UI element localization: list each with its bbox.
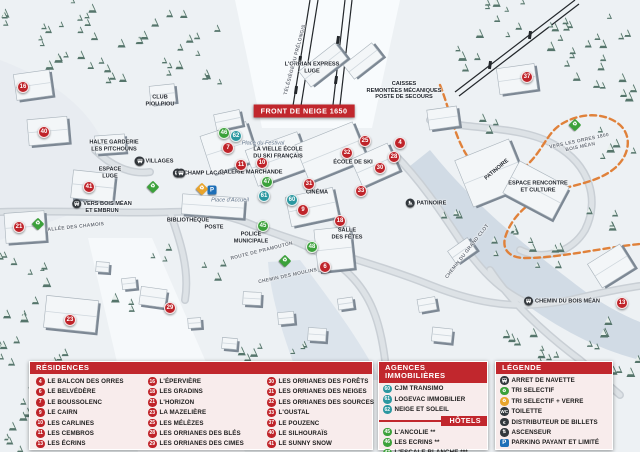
item-label: LE BELVÉDÈRE: [48, 388, 96, 395]
map-marker-residence-30: 30: [374, 162, 386, 174]
recycle-green-icon: ♻: [32, 218, 45, 231]
bus-icon: [500, 376, 509, 385]
item-label: NEIGE ET SOLEIL: [395, 406, 449, 413]
item-number-badge: 47: [383, 449, 392, 452]
map-label-text: BIBLIOTHÈQUE: [167, 218, 209, 224]
map-label: CLUBPIOU PIOU: [146, 94, 175, 107]
map-marker-hotel-47: 47: [261, 176, 273, 188]
item-number-badge: 28: [148, 429, 157, 438]
item-label: LES ORRIANES DES CIMES: [160, 440, 244, 447]
map-label: TÉLÉSIÈGE DU PRÉLONGIS: [284, 24, 308, 96]
map-label-text: ÉCOLE DE SKI: [333, 160, 372, 166]
agences-header: AGENCES IMMOBILIÈRES: [379, 362, 487, 383]
map-marker-residence-18: 18: [334, 215, 346, 227]
map-marker-residence-16: 16: [17, 81, 29, 93]
map-label: PATINOIRE: [483, 158, 510, 182]
residence-item: 11LES CEMBROS: [32, 428, 144, 438]
item-label: LE SUNNY SNOW: [279, 440, 332, 447]
item-number-badge: 46: [383, 438, 392, 447]
item-label: LES ORRIANES DES NEIGES: [279, 388, 367, 395]
map-label: CHEMIN DES MOULINS: [258, 268, 318, 286]
map-label-text: SALLEDES FÊTES: [331, 227, 362, 240]
map-label-text: PATINOIRE: [483, 158, 510, 182]
residence-item: 31LES ORRIANES DES NEIGES: [263, 387, 373, 397]
map-label-text: ALLÉE DES CHAMOIS: [47, 222, 104, 233]
recycle-green-icon: ♻: [500, 387, 509, 396]
legende-list: ARRET DE NAVETTE♻TRI SELECTIF♻TRI SELECT…: [496, 374, 612, 448]
item-number-badge: 60: [383, 385, 392, 394]
map-label-text: VERS BOIS MÉANET EMBRUN: [83, 201, 132, 214]
residence-item: 13LES ÉCRINS: [32, 439, 144, 449]
map-label-text: CHEMIN DU BOIS MÉAN: [535, 298, 600, 304]
parking-icon: P: [500, 439, 509, 448]
item-label: CJM TRANSIMO: [395, 385, 444, 392]
map-marker-hotel-46: 46: [218, 127, 230, 139]
hotel-item: 45L'ANCOLIE **: [379, 427, 487, 437]
item-number-badge: 45: [383, 428, 392, 437]
item-number-badge: 32: [267, 398, 276, 407]
residence-item: 30LES ORRIANES DES FORÊTS: [263, 376, 373, 386]
residence-item: 4LE BALCON DES ORRES: [32, 376, 144, 386]
map-marker-residence-6: 6: [319, 261, 331, 273]
map-label-text: ESPACELUGE: [99, 166, 122, 179]
item-label: LA MAZELIÈRE: [160, 409, 207, 416]
agences-list: 60CJM TRANSIMO61LOGEVAC IMMOBILIER62NEIG…: [379, 383, 487, 415]
item-label: LOGEVAC IMMOBILIER: [395, 396, 466, 403]
hotels-header-bar: HÔTELS: [379, 416, 487, 426]
item-label: LE BOUSSOLENC: [48, 399, 103, 406]
legende-item: ⇅ASCENSEUR: [496, 427, 612, 437]
map-label-text: TÉLÉSIÈGE DU PRÉLONGIS: [284, 24, 308, 95]
item-number-badge: 16: [148, 377, 157, 386]
map-label-text: VERS LES ORRES 1800BOIS MÉAN: [549, 133, 610, 153]
item-label: TRI SELECTIF: [512, 387, 555, 394]
residence-item: 41LE SUNNY SNOW: [263, 439, 373, 449]
item-number-badge: 29: [148, 440, 157, 449]
euro-icon: €: [500, 418, 509, 427]
map-marker-residence-28: 28: [388, 151, 400, 163]
item-number-badge: 41: [267, 440, 276, 449]
legende-item: ♻TRI SELECTIF: [496, 386, 612, 396]
map-label-text: Place du Festival: [242, 141, 285, 147]
recycle-green-icon: ♻: [147, 181, 160, 194]
map-label-text: PATINOIRE: [417, 200, 447, 206]
hotels-header: HÔTELS: [441, 416, 487, 426]
item-label: LES ORRIANES DES BLÉS: [160, 430, 241, 437]
map-label: GALERIE MARCHANDE: [219, 170, 282, 177]
map-marker-residence-31: 31: [303, 178, 315, 190]
hotel-item: 46LES ECRINS **: [379, 437, 487, 447]
map-label: PATINOIRE: [406, 199, 447, 208]
item-number-badge: 21: [148, 398, 157, 407]
parking-icon: P: [208, 186, 217, 195]
item-label: TOILETTE: [512, 408, 543, 415]
map-marker-hotel-48: 48: [306, 241, 318, 253]
hotels-header-line: [379, 420, 441, 422]
map-label-text: POSTE: [205, 225, 224, 231]
residence-item: 16L'ÉPERVIÈRE: [144, 376, 262, 386]
residences-header: RÉSIDENCES: [30, 362, 372, 374]
item-number-badge: 62: [383, 405, 392, 414]
agence-item: 60CJM TRANSIMO: [379, 384, 487, 394]
legende-item: PPARKING PAYANT ET LIMITÉ: [496, 438, 612, 448]
map-label: ESPACELUGE: [99, 166, 122, 179]
item-number-badge: 9: [36, 408, 45, 417]
map-label: CINÉMA: [306, 190, 328, 197]
map-label-text: VILLAGES: [146, 158, 174, 164]
residences-column-3: 30LES ORRIANES DES FORÊTS31LES ORRIANES …: [263, 376, 373, 449]
map-label: Place d'Accueil: [211, 198, 249, 205]
agence-item: 61LOGEVAC IMMOBILIER: [379, 394, 487, 404]
item-number-badge: 37: [267, 419, 276, 428]
map-marker-residence-32: 32: [341, 147, 353, 159]
bus-icon: [524, 297, 533, 306]
recycle-yellow-icon: ♻: [196, 183, 209, 196]
residence-item: 7LE BOUSSOLENC: [32, 397, 144, 407]
map-label: SALLEDES FÊTES: [331, 227, 362, 240]
map-marker-residence-40: 40: [38, 126, 50, 138]
hotels-list: 45L'ANCOLIE **46LES ECRINS **47L'ESCALE …: [379, 427, 487, 452]
map-label-text: POLICEMUNICIPALE: [234, 231, 268, 244]
residence-item: 23LA MAZELIÈRE: [144, 408, 262, 418]
map-label: POLICEMUNICIPALE: [234, 231, 268, 244]
item-number-badge: 25: [148, 419, 157, 428]
residence-item: 33L'OUSTAL: [263, 408, 373, 418]
map-label: Place du Festival: [242, 141, 285, 148]
map-marker-agence-61: 61: [258, 190, 270, 202]
residence-item: 29LES ORRIANES DES CIMES: [144, 439, 262, 449]
residence-item: 10LES CARLINES: [32, 418, 144, 428]
map-marker-agence-62: 62: [230, 130, 242, 142]
map-marker-residence-9: 9: [297, 204, 309, 216]
hotel-item: 47L'ESCALE BLANCHE ***: [379, 448, 487, 452]
item-label: ASCENSEUR: [512, 429, 552, 436]
recycle-green-icon: ♻: [279, 255, 292, 268]
map-label-text: GALERIE MARCHANDE: [219, 170, 282, 176]
item-number-badge: 31: [267, 388, 276, 397]
map-label-text: ESPACE RENCONTREET CULTURE: [508, 180, 568, 193]
legende-item: WCTOILETTE: [496, 407, 612, 417]
map-marker-residence-25: 25: [359, 135, 371, 147]
item-number-badge: 40: [267, 429, 276, 438]
agence-item: 62NEIGE ET SOLEIL: [379, 404, 487, 414]
item-label: LE POUZENC: [279, 420, 320, 427]
agences-hotels-legend-card: AGENCES IMMOBILIÈRES 60CJM TRANSIMO61LOG…: [378, 361, 488, 450]
item-label: LES ÉCRINS: [48, 440, 86, 447]
item-number-badge: 4: [36, 377, 45, 386]
map-label: ALLÉE DES CHAMOIS: [47, 222, 104, 234]
item-label: PARKING PAYANT ET LIMITÉ: [512, 439, 600, 446]
item-label: LE CAIRN: [48, 409, 78, 416]
item-number-badge: 13: [36, 440, 45, 449]
item-label: DISTRIBUTEUR DE BILLETS: [512, 419, 598, 426]
legende-item: ♻TRI SELECTIF + VERRE: [496, 396, 612, 406]
resort-map: FRONT DE NEIGE 1650 L'ORRIAN EXPRESSLUGE…: [0, 0, 640, 452]
map-marker-residence-23: 23: [64, 314, 76, 326]
residences-columns: 4LE BALCON DES ORRES6LE BELVÉDÈRE7LE BOU…: [30, 374, 372, 376]
bus-icon: [72, 199, 81, 208]
legende-header: LÉGENDE: [496, 362, 612, 374]
bus-icon: [136, 157, 145, 166]
map-label-text: Place d'Accueil: [211, 198, 249, 204]
residences-column-1: 4LE BALCON DES ORRES6LE BELVÉDÈRE7LE BOU…: [32, 376, 144, 449]
map-label: POSTE: [205, 225, 224, 232]
item-number-badge: 6: [36, 388, 45, 397]
residence-item: 28LES ORRIANES DES BLÉS: [144, 428, 262, 438]
bus-icon: [177, 169, 186, 178]
legende-card: LÉGENDE ARRET DE NAVETTE♻TRI SELECTIF♻TR…: [495, 361, 613, 450]
map-marker-residence-29: 29: [164, 302, 176, 314]
item-label: LES ORRIANES DES FORÊTS: [279, 378, 369, 385]
map-marker-residence-37: 37: [521, 71, 533, 83]
map-label: CAISSESREMONTÉES MÉCANIQUESPOSTE DE SECO…: [367, 81, 442, 101]
item-label: LE SILHOURAÏS: [279, 430, 328, 437]
map-marker-residence-10: 10: [256, 157, 268, 169]
residence-item: 40LE SILHOURAÏS: [263, 428, 373, 438]
legende-item: ARRET DE NAVETTE: [496, 375, 612, 385]
item-number-badge: 33: [267, 408, 276, 417]
item-label: LES ORRIANES DES SOURCES: [279, 399, 375, 406]
map-marker-residence-7: 7: [222, 142, 234, 154]
map-label-text: CHEMIN DES MOULINS: [258, 268, 318, 285]
map-marker-residence-33: 33: [355, 185, 367, 197]
map-marker-residence-21: 21: [13, 221, 25, 233]
residence-item: 37LE POUZENC: [263, 418, 373, 428]
item-number-badge: 23: [148, 408, 157, 417]
item-label: LES GRADINS: [160, 388, 203, 395]
item-number-badge: 61: [383, 395, 392, 404]
map-label-text: CLUBPIOU PIOU: [146, 94, 175, 107]
map-label: ESPACE RENCONTREET CULTURE: [508, 180, 568, 193]
item-number-badge: 11: [36, 429, 45, 438]
map-marker-residence-4: 4: [394, 137, 406, 149]
map-label: BIBLIOTHÈQUE: [167, 218, 209, 225]
skate-icon: [406, 199, 415, 208]
item-label: LES MÉLÈZES: [160, 420, 204, 427]
item-number-badge: 7: [36, 398, 45, 407]
map-label: CHEMIN DU GRAND CLOT: [445, 224, 491, 281]
item-number-badge: 30: [267, 377, 276, 386]
residence-item: 18LES GRADINS: [144, 387, 262, 397]
residence-item: 9LE CAIRN: [32, 408, 144, 418]
residence-item: 25LES MÉLÈZES: [144, 418, 262, 428]
item-label: LES CEMBROS: [48, 430, 94, 437]
front-de-neige-banner: FRONT DE NEIGE 1650: [254, 105, 355, 118]
elevator-icon: ⇅: [500, 428, 509, 437]
item-label: L'ANCOLIE **: [395, 429, 436, 436]
residence-item: 6LE BELVÉDÈRE: [32, 387, 144, 397]
map-label-text: CINÉMA: [306, 190, 328, 196]
residences-legend-card: RÉSIDENCES 4LE BALCON DES ORRES6LE BELVÉ…: [29, 361, 373, 450]
residence-item: 21L'HORIZON: [144, 397, 262, 407]
map-label-text: CHEMIN DU GRAND CLOT: [445, 224, 491, 280]
item-label: LES ECRINS **: [395, 439, 440, 446]
map-marker-residence-13: 13: [616, 297, 628, 309]
map-label: ÉCOLE DE SKI: [333, 160, 372, 167]
item-label: ARRET DE NAVETTE: [512, 377, 575, 384]
item-label: LE BALCON DES ORRES: [48, 378, 124, 385]
map-label: CHEMIN DU BOIS MÉAN: [524, 297, 600, 306]
map-marker-residence-41: 41: [83, 181, 95, 193]
map-marker-hotel-45: 45: [257, 220, 269, 232]
legende-item: €DISTRIBUTEUR DE BILLETS: [496, 417, 612, 427]
item-label: L'OUSTAL: [279, 409, 310, 416]
item-label: LES CARLINES: [48, 420, 95, 427]
wc-icon: WC: [500, 407, 509, 416]
residences-column-2: 16L'ÉPERVIÈRE18LES GRADINS21L'HORIZON23L…: [144, 376, 262, 449]
item-number-badge: 10: [36, 419, 45, 428]
item-label: TRI SELECTIF + VERRE: [512, 398, 584, 405]
map-marker-residence-11: 11: [235, 159, 247, 171]
map-label: VERS LES ORRES 1800BOIS MÉAN: [549, 133, 611, 157]
map-marker-agence-60: 60: [286, 194, 298, 206]
map-label-text: HALTE GARDERIELES PITCHOUNS: [89, 139, 138, 152]
map-label: HALTE GARDERIELES PITCHOUNS: [89, 139, 138, 152]
item-number-badge: 18: [148, 388, 157, 397]
recycle-glass-icon: ♻: [500, 397, 509, 406]
item-label: L'HORIZON: [160, 399, 195, 406]
item-label: L'ÉPERVIÈRE: [160, 378, 202, 385]
map-label: VERS BOIS MÉANET EMBRUN: [72, 199, 132, 215]
map-label-text: CAISSESREMONTÉES MÉCANIQUESPOSTE DE SECO…: [367, 81, 442, 100]
recycle-green-icon: ♻: [569, 119, 582, 132]
residence-item: 32LES ORRIANES DES SOURCES: [263, 397, 373, 407]
